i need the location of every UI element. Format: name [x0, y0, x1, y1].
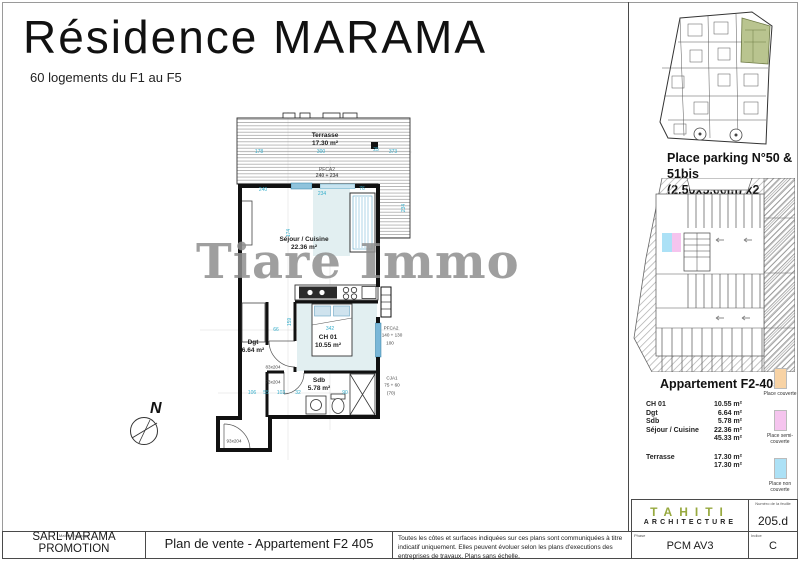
room-name: Dgt: [646, 410, 658, 419]
index-label: Indice: [751, 533, 795, 538]
room-name: Séjour / Cuisine: [646, 427, 699, 436]
architect-logo-line2: ARCHITECTURE: [632, 519, 748, 526]
apartment-area-row: CH 0110.55 m²: [646, 401, 742, 410]
compass-icon: N: [131, 400, 163, 445]
exterior-unit: [381, 287, 391, 317]
room-name: Sdb: [646, 418, 659, 427]
highlighted-apartment: [741, 18, 770, 64]
room-area: 5.78 m²: [718, 418, 742, 427]
stair-core: [684, 233, 710, 271]
page-title: Résidence MARAMA: [23, 10, 487, 64]
room-name: Terrasse: [646, 454, 675, 463]
parking-legend: Place couvertePlace semi-couvertePlace n…: [760, 368, 800, 506]
parking-space-non-couverte: [662, 233, 672, 252]
legend-label: Place semi-couverte: [760, 433, 800, 445]
architect-logo-line1: TAHITI: [632, 505, 748, 519]
dgt-closet: [242, 303, 265, 342]
bed-icon: [312, 304, 352, 356]
phase-value: PCM AV3: [632, 540, 748, 552]
plan-de-vente-page: Résidence MARAMA 60 logements du F1 au F…: [0, 0, 800, 561]
index-value: C: [749, 540, 797, 552]
legend-swatch: [774, 458, 787, 479]
watermark-tiare-immo: Tiare Immo: [196, 234, 520, 290]
legend-swatch: [774, 410, 787, 431]
terrace-column: [371, 142, 378, 149]
room-name: CH 01: [646, 401, 666, 410]
page-subtitle: 60 logements du F1 au F5: [30, 70, 182, 85]
index-cell: Indice C: [748, 531, 798, 559]
legend-item: Place semi-couverte: [760, 410, 800, 445]
bathroom-fixtures: [306, 374, 375, 415]
parking-plan: [632, 178, 795, 372]
room-area: 10.55 m²: [714, 401, 742, 410]
door-arcs: [224, 341, 304, 450]
apartment-area-row: Dgt6.64 m²: [646, 410, 742, 419]
phase-label: Phase: [634, 533, 746, 538]
apartment-area-row: 17.30 m²: [646, 462, 742, 471]
apartment-area-row: Terrasse17.30 m²: [646, 454, 742, 463]
room-area: 22.36 m²: [714, 427, 742, 436]
legend-label: Place couverte: [760, 391, 800, 397]
apartment-area-row: Séjour / Cuisine22.36 m²: [646, 427, 742, 436]
sheet-number: 205.d: [749, 514, 797, 528]
room-area: 17.30 m²: [714, 462, 742, 471]
owner-value: SARL MARAMA PROMOTION: [3, 531, 145, 555]
legend-swatch: [774, 368, 787, 389]
room-area: 17.30 m²: [714, 454, 742, 463]
room-area: 45.33 m²: [714, 435, 742, 444]
apartment-area-row: 45.33 m²: [646, 435, 742, 444]
apartment-areas-table: CH 0110.55 m²Dgt6.64 m²Sdb5.78 m²Séjour …: [646, 401, 742, 471]
disclaimer-text: Toutes les côtes et surfaces indiquées s…: [393, 532, 631, 561]
legend-label: Place non couverte: [760, 481, 800, 493]
sidebar-divider: [628, 2, 629, 559]
toilet: [332, 399, 344, 414]
legend-item: Place non couverte: [760, 458, 800, 493]
plan-title: Plan de vente - Appartement F2 405: [146, 536, 392, 551]
owner-cell: Maître d'ouvrage SARL MARAMA PROMOTION: [2, 531, 146, 559]
legend-item: Place couverte: [760, 368, 800, 397]
sheet-number-cell: Numéro de la feuille 205.d: [748, 499, 798, 532]
room-area: 6.64 m²: [718, 410, 742, 419]
apartment-area-row: Sdb5.78 m²: [646, 418, 742, 427]
site-key-plan: [648, 8, 788, 150]
architect-logo-cell: TAHITI ARCHITECTURE: [631, 499, 749, 532]
disclaimer-cell: Toutes les côtes et surfaces indiquées s…: [392, 531, 632, 559]
phase-cell: Phase PCM AV3: [631, 531, 749, 559]
plan-title-cell: Plan de vente - Appartement F2 405: [145, 531, 393, 559]
floor-plan-drawing: N: [100, 95, 628, 525]
parking-space-semi-couverte: [672, 233, 681, 252]
sheet-number-label: Numéro de la feuille: [751, 501, 795, 506]
compass-north-label: N: [150, 400, 162, 417]
